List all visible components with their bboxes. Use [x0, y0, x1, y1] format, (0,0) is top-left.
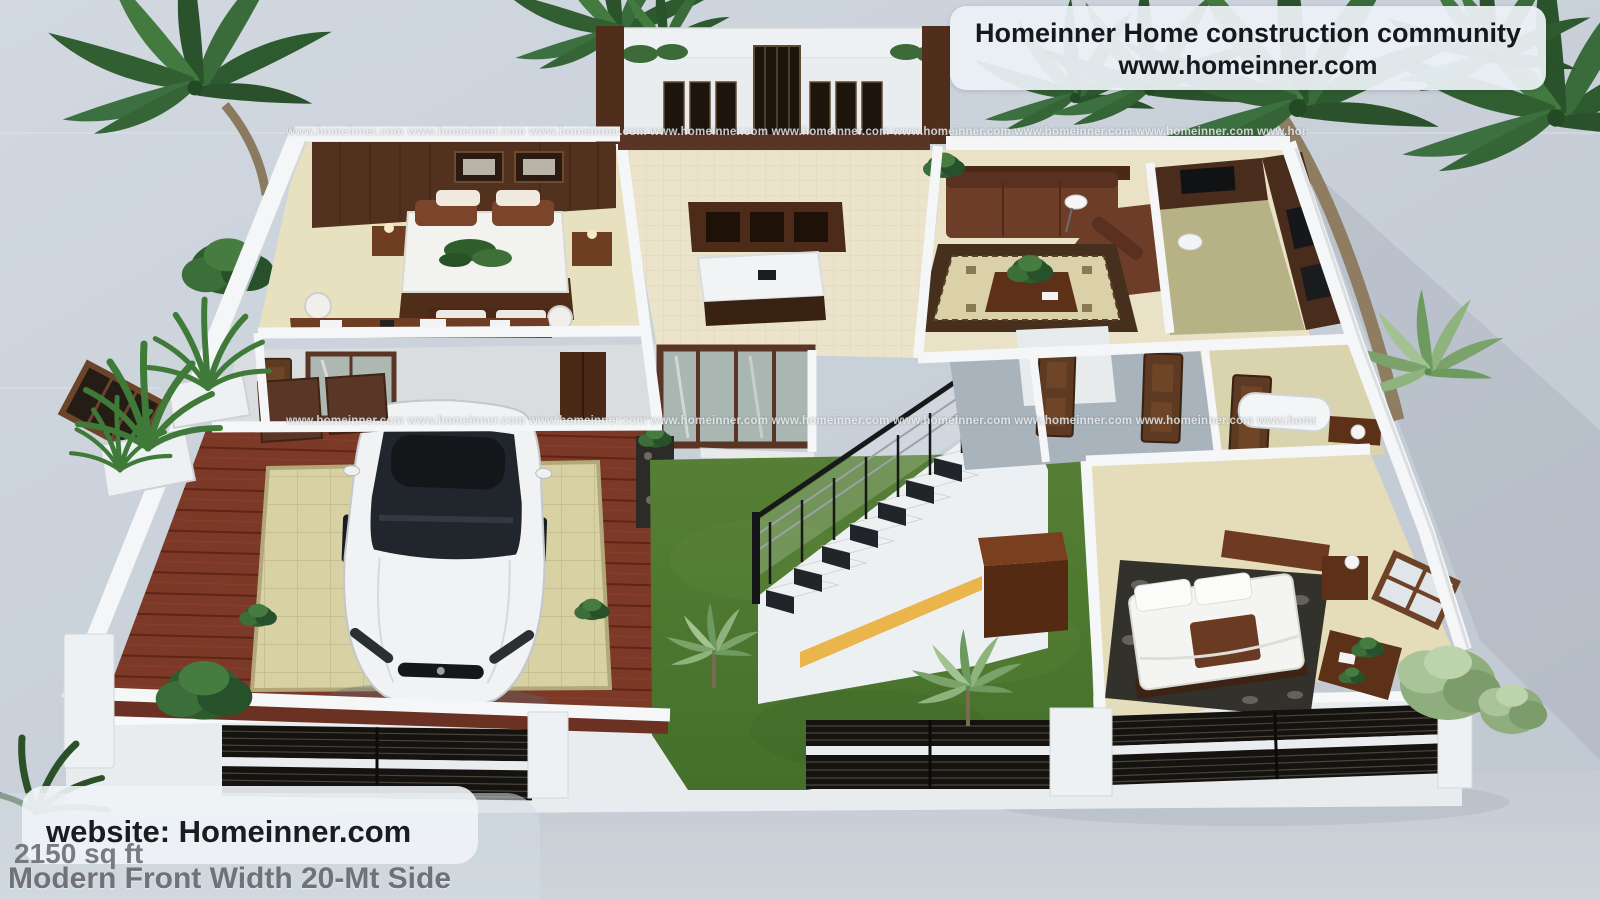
pouf [305, 293, 331, 319]
washbasin [1351, 425, 1365, 439]
wall-post [528, 712, 568, 798]
banner-url: www.homeinner.com [1118, 50, 1377, 80]
plan-label: Modern Front Width 20-Mt Side [8, 862, 451, 896]
newel-post [752, 512, 760, 604]
storage-chest [978, 532, 1068, 638]
pillow [496, 190, 540, 206]
counter-item [758, 270, 776, 280]
gate-panel [1107, 704, 1445, 785]
watermark-row: www.homeinner.com www.homeinner.com www.… [286, 124, 1306, 140]
bedside-lamp [384, 223, 394, 233]
table-lamp [1345, 555, 1359, 569]
bed-2 [1122, 564, 1308, 699]
wall-post [1050, 708, 1112, 796]
side-mirror [536, 468, 552, 479]
bed [399, 190, 574, 332]
screenshot-root: www.homeinner.com www.homeinner.com www.… [0, 0, 1600, 900]
glass-partition [660, 348, 812, 445]
car-roof [390, 434, 506, 490]
door [1142, 353, 1183, 442]
art-print [463, 159, 495, 175]
brand-banner: Homeinner Home construction community ww… [950, 6, 1546, 90]
watermark-row: www.homeinner.com www.homeinner.com www.… [286, 413, 1316, 429]
art-print [523, 159, 555, 175]
books [1042, 292, 1058, 300]
kitchen-island [698, 252, 826, 326]
throw-blanket [1189, 614, 1261, 669]
banner-title: Homeinner Home construction community [975, 16, 1521, 50]
gate-panel [806, 720, 1054, 789]
pillow [436, 190, 480, 206]
website-label: website: Homeinner.com [46, 814, 411, 850]
cooktop [1180, 166, 1236, 194]
bedside-lamp [587, 229, 597, 239]
sink [1178, 234, 1202, 250]
floor-lamp [1065, 195, 1087, 209]
side-mirror [344, 465, 360, 476]
